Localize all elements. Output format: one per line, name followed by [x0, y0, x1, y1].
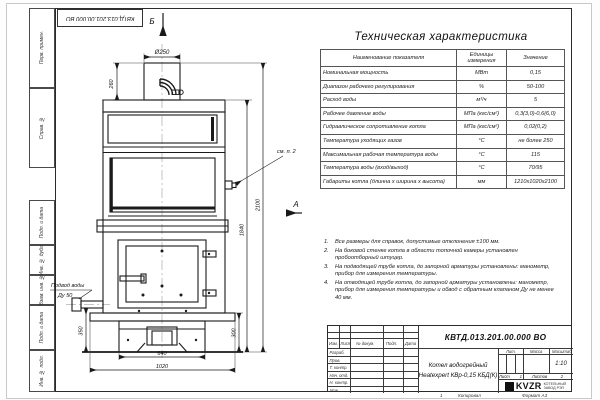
- spec-row: Рабочее давление водыМПа (кгс/см²)0,3(3,…: [321, 107, 565, 121]
- note-number: 4.: [324, 280, 335, 303]
- tb-company-logo: KVZR КОТЕЛЬНЫЙ ЗАВОД РЭП: [498, 379, 573, 393]
- tb-row-nkontr: Н. контр.: [330, 380, 349, 385]
- door-handle: [120, 276, 144, 281]
- spec-value: 0,02(0,2): [507, 121, 565, 135]
- dim-base-height: 300: [232, 327, 238, 337]
- drawing-sheet-page: { "watermark": "KVZR.RU", "frame": { "to…: [0, 0, 600, 400]
- extension-lines: [90, 54, 267, 374]
- spec-value: 0,3(3,0)-0,6(6,0): [507, 107, 565, 121]
- spec-units: %: [457, 80, 507, 94]
- dim-flue-height: 260: [109, 78, 115, 89]
- tb-col-podp: Подп.: [386, 341, 397, 346]
- spec-row: Гидравлическое сопротивление котлаМПа (к…: [321, 121, 565, 135]
- tb-col-izm: Изм.: [329, 341, 338, 346]
- spec-row: Максимальная рабочая температура воды°С1…: [321, 148, 565, 162]
- spec-name: Температура воды (вход/выход): [321, 162, 457, 176]
- spec-value: 70/95: [507, 162, 565, 176]
- note-number: 3.: [324, 264, 335, 279]
- spec-header-row: Наименование показателя Единицы измерени…: [321, 50, 565, 67]
- tb-product-name: Котел водогрейный Heatexpert КВр-0,15 КБ…: [418, 348, 498, 393]
- spec-units: °С: [457, 148, 507, 162]
- spec-units: МПа (кгс/см²): [457, 121, 507, 135]
- tb-row-razrab: Разраб.: [330, 350, 345, 355]
- spec-name: Диапазон рабочего регулирования: [321, 80, 457, 94]
- spec-name: Гидравлическое сопротивление котла: [321, 121, 457, 135]
- spec-table-title: Техническая характеристика: [318, 31, 564, 43]
- kvzr-logo-icon: [505, 382, 514, 391]
- note-item: 1.Все размеры для справок, допустимые от…: [324, 239, 558, 247]
- note-item: 3.На подводящей трубе котла, до запорной…: [324, 264, 558, 279]
- tb-row-nachotd: Нач. отд.: [330, 373, 349, 378]
- tb-col-data: Дата: [405, 341, 416, 346]
- dim-body-height: 1840: [240, 223, 246, 236]
- upper-door: [108, 115, 217, 143]
- sampling-fitting: [225, 181, 232, 189]
- spec-units: °С: [457, 134, 507, 148]
- tb-sheets-value: 2: [561, 374, 563, 379]
- tb-lit-label: Лит.: [506, 349, 516, 354]
- spec-row: Диапазон рабочего регулирования%50-100: [321, 80, 565, 94]
- loading-door: [110, 158, 215, 212]
- tb-sheets-label: Листов: [532, 374, 547, 379]
- view-b-label: Б: [149, 17, 154, 26]
- spec-row: Температура уходящих газов°Сне более 250: [321, 134, 565, 148]
- spec-row: Температура воды (вход/выход)°С70/95: [321, 162, 565, 176]
- spec-col-value: Значение: [507, 50, 565, 67]
- water-inlet-label-2: Ду 50: [57, 293, 73, 299]
- tb-mass-label: Масса: [530, 349, 542, 354]
- tb-product-name-line1: Котел водогрейный: [429, 361, 488, 370]
- spec-name: Расход воды: [321, 94, 457, 108]
- tb-row-utv: Утв.: [330, 388, 340, 393]
- tb-scale-value: 1:10: [549, 354, 573, 373]
- spec-value: 1210х1020х2100: [507, 175, 565, 189]
- dim-total-height: 2100: [256, 198, 262, 212]
- bottom-plate: [90, 313, 235, 321]
- view-a-label: А: [292, 200, 298, 209]
- tb-row-prov: Пров.: [330, 358, 341, 363]
- spec-value: 0,15: [507, 67, 565, 81]
- spec-name: Максимальная рабочая температура воды: [321, 148, 457, 162]
- dim-body-width: 1020: [156, 364, 169, 370]
- tb-col-ndokum: № докум.: [356, 341, 374, 346]
- spec-name: Температура уходящих газов: [321, 134, 457, 148]
- company-name: КОТЕЛЬНЫЙ ЗАВОД РЭП: [544, 382, 567, 391]
- spec-units: МПа (кгс/см²): [457, 107, 507, 121]
- tb-product-name-line2: Heatexpert КВр-0,15 КБД(К): [419, 371, 498, 380]
- spec-col-units: Единицы измерения: [457, 50, 507, 67]
- spec-value: 5: [507, 94, 565, 108]
- spec-units: мм: [457, 175, 507, 189]
- spec-table: Наименование показателя Единицы измерени…: [320, 49, 565, 189]
- note-item: 2.На боковой стенке котла в области топо…: [324, 248, 558, 263]
- note-text: Все размеры для справок, допустимые откл…: [335, 239, 500, 247]
- spec-units: МВт: [457, 67, 507, 81]
- notes-list: 1.Все размеры для справок, допустимые от…: [324, 239, 558, 303]
- copied-label: Копировал: [458, 393, 481, 398]
- spec-name: Габариты котла (длинна х ширина х высота…: [321, 175, 457, 189]
- note-text: На отводящей трубе котла, до запорной ар…: [335, 280, 558, 303]
- format-label: Формат А3: [522, 393, 547, 398]
- bottom-marker: 1: [440, 393, 443, 398]
- spec-value: не более 250: [507, 134, 565, 148]
- dim-base-width: 640: [157, 351, 167, 357]
- note-text: На подводящей трубе котла, до запорной а…: [335, 264, 558, 279]
- tb-row-tkontr: Т. контр.: [330, 365, 348, 370]
- spec-value: 50-100: [507, 80, 565, 94]
- spec-name: Рабочее давление воды: [321, 107, 457, 121]
- spec-value: 115: [507, 148, 565, 162]
- note-number: 2.: [324, 248, 335, 263]
- see-note-callout: см. п. 2: [277, 149, 296, 155]
- spec-units: °С: [457, 162, 507, 176]
- note-item: 4.На отводящей трубе котла, до запорной …: [324, 280, 558, 303]
- dimension-lines: [86, 57, 263, 370]
- tb-sheet-value: 1: [520, 374, 522, 379]
- leaders: [50, 13, 302, 299]
- company-name-line2: ЗАВОД РЭП: [544, 386, 565, 390]
- spec-col-name: Наименование показателя: [321, 50, 457, 67]
- spec-row: Расход водым³/ч5: [321, 94, 565, 108]
- tb-sheet-label: Лист: [499, 374, 510, 379]
- spec-name: Номинальная мощность: [321, 67, 457, 81]
- tb-col-list: Лист: [341, 341, 352, 346]
- spec-row: Габариты котла (длинна х ширина х высота…: [321, 175, 565, 189]
- door-frames: [110, 117, 215, 212]
- dim-flue-diameter: Ø250: [154, 50, 170, 56]
- note-text: На боковой стенке котла в области топочн…: [335, 248, 558, 263]
- title-block: Изм. Лист № докум. Подп. Дата Разраб. Пр…: [327, 325, 572, 392]
- spec-units: м³/ч: [457, 94, 507, 108]
- spec-row: Номинальная мощностьМВт0,15: [321, 67, 565, 81]
- note-number: 1.: [324, 239, 335, 247]
- dim-inlet-height: 350: [79, 325, 85, 335]
- tb-doc-number: КВТД.013.201.00.000 ВО: [418, 326, 573, 348]
- water-inlet-label-1: Подвод воды: [51, 283, 84, 289]
- kvzr-logo-text: KVZR: [516, 381, 542, 391]
